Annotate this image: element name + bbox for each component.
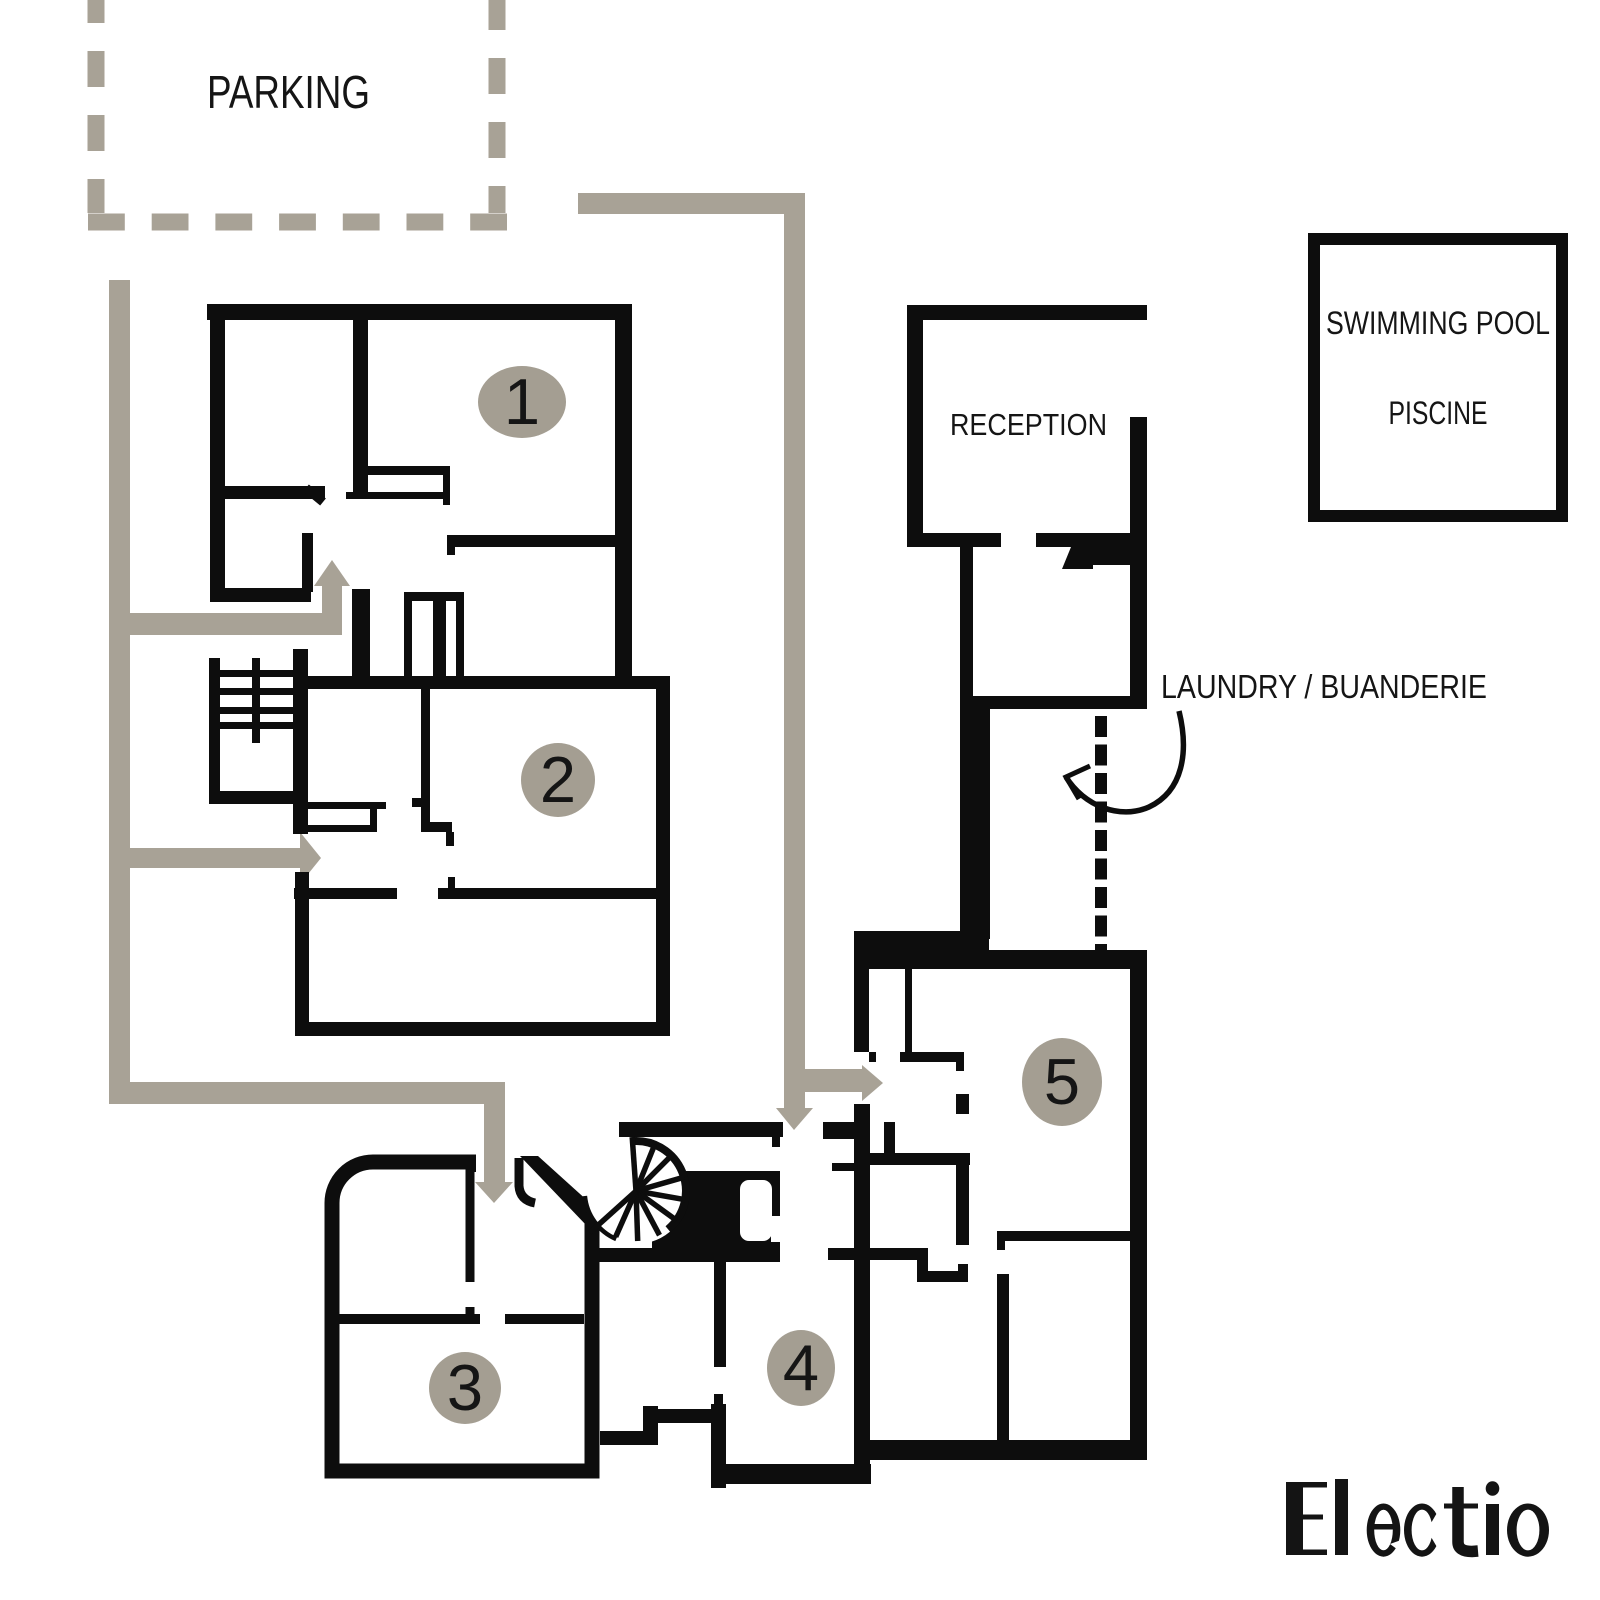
svg-text:SWIMMING POOL: SWIMMING POOL — [1326, 305, 1550, 341]
svg-text:2: 2 — [540, 743, 576, 816]
svg-text:3: 3 — [447, 1351, 483, 1424]
svg-text:4: 4 — [783, 1331, 819, 1404]
svg-text:PARKING: PARKING — [207, 66, 370, 118]
svg-text:1: 1 — [504, 365, 540, 438]
svg-text:5: 5 — [1044, 1045, 1080, 1118]
svg-text:LAUNDRY / BUANDERIE: LAUNDRY / BUANDERIE — [1161, 668, 1487, 705]
svg-text:PISCINE: PISCINE — [1389, 395, 1488, 431]
svg-text:RECEPTION: RECEPTION — [950, 408, 1107, 442]
